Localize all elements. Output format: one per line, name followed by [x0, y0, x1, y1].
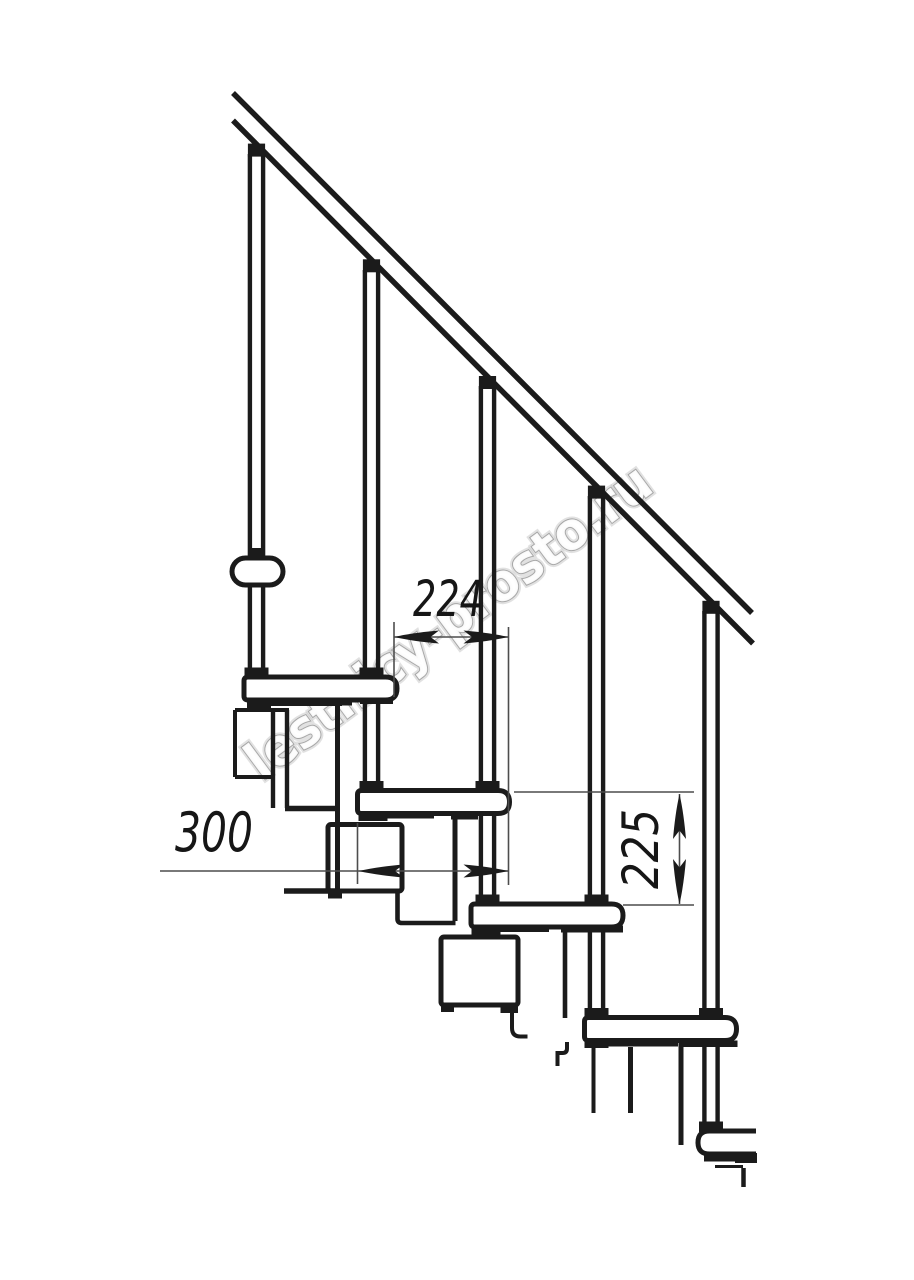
collar-b4-s3	[585, 895, 609, 906]
collar-b3-s3	[476, 895, 500, 906]
collar-b4-s4	[585, 1008, 609, 1019]
module-4-tab-left	[441, 1005, 454, 1012]
staircase-technical-drawing: lestnicy-prosto.ru lestnicy-prosto.ru	[0, 0, 914, 1280]
step-4	[585, 1018, 737, 1041]
collar-b5-s4	[699, 1008, 723, 1019]
dim-label-tread: 300	[175, 801, 253, 864]
underbar-s1-nose	[360, 698, 393, 705]
module-4-tab-right	[501, 1005, 519, 1013]
step-2	[358, 791, 510, 814]
collar-b2-s2	[360, 781, 384, 792]
foot-s3	[472, 926, 501, 935]
step-5-cut	[698, 1131, 756, 1154]
rail-joint-cap-3	[479, 376, 496, 389]
underbar-s4-nose	[683, 1041, 738, 1048]
underbar-s3-nose	[561, 926, 623, 933]
underblock-s5	[735, 1153, 757, 1163]
dim-label-rise: 225	[612, 809, 670, 889]
bracket-body	[232, 558, 283, 585]
foot-s4	[585, 1040, 609, 1048]
foot-s2	[359, 813, 388, 822]
step-3	[471, 904, 623, 927]
module-2-tab	[328, 891, 342, 899]
drawing-page: lestnicy-prosto.ru lestnicy-prosto.ru	[0, 0, 914, 1280]
dim-label-run: 224	[413, 570, 483, 628]
rail-joint-cap-2	[363, 259, 380, 272]
rail-joint-cap-1	[248, 144, 265, 157]
rail-joint-cap-4	[588, 486, 605, 499]
collar-b2-s1	[360, 668, 384, 679]
module-3-top-cap	[451, 813, 478, 820]
collar-b3-s2	[476, 781, 500, 792]
step-1	[244, 677, 397, 700]
underbar-s2	[387, 813, 434, 819]
collar-b1-s1	[245, 668, 269, 679]
rail-joint-cap-5	[702, 601, 719, 614]
underbar-s4	[607, 1041, 678, 1047]
collar-b5-s5	[699, 1122, 723, 1133]
module-1-top-cap	[329, 698, 352, 706]
underbar-s3	[500, 927, 549, 933]
